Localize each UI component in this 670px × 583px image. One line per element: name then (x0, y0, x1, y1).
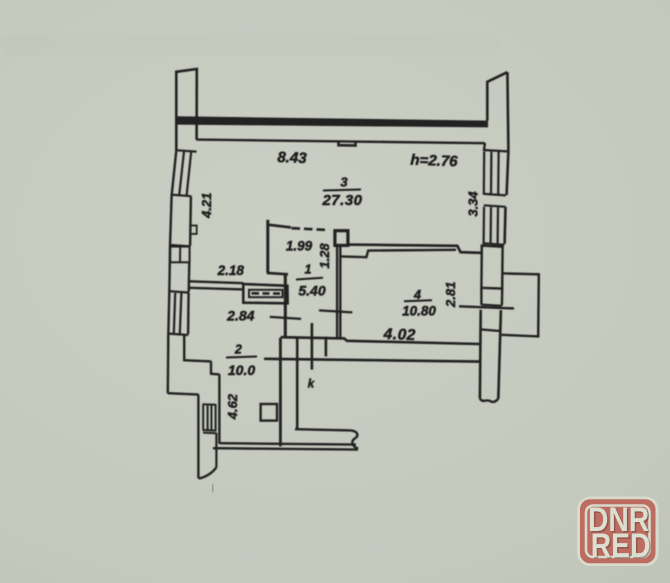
svg-text:4.02: 4.02 (382, 326, 416, 344)
svg-text:4.21: 4.21 (199, 193, 214, 219)
svg-text:2.81: 2.81 (443, 282, 458, 308)
svg-text:1.99: 1.99 (286, 239, 313, 254)
svg-text:2: 2 (234, 343, 242, 357)
svg-text:27.30: 27.30 (321, 192, 362, 209)
svg-text:RED: RED (591, 525, 651, 564)
svg-text:1: 1 (305, 263, 312, 277)
svg-text:2.18: 2.18 (217, 263, 245, 278)
svg-text:3.34: 3.34 (466, 191, 481, 217)
svg-text:1.28: 1.28 (317, 243, 332, 269)
svg-text:h=2.76: h=2.76 (410, 152, 458, 171)
svg-text:10.0: 10.0 (228, 362, 255, 378)
svg-text:k: k (308, 379, 315, 391)
svg-text:4.62: 4.62 (225, 393, 240, 420)
svg-text:8.43: 8.43 (277, 149, 307, 167)
svg-text:2.84: 2.84 (226, 307, 254, 323)
svg-text:10.80: 10.80 (402, 304, 436, 319)
svg-text:3: 3 (340, 175, 348, 190)
svg-text:5.40: 5.40 (298, 283, 325, 299)
